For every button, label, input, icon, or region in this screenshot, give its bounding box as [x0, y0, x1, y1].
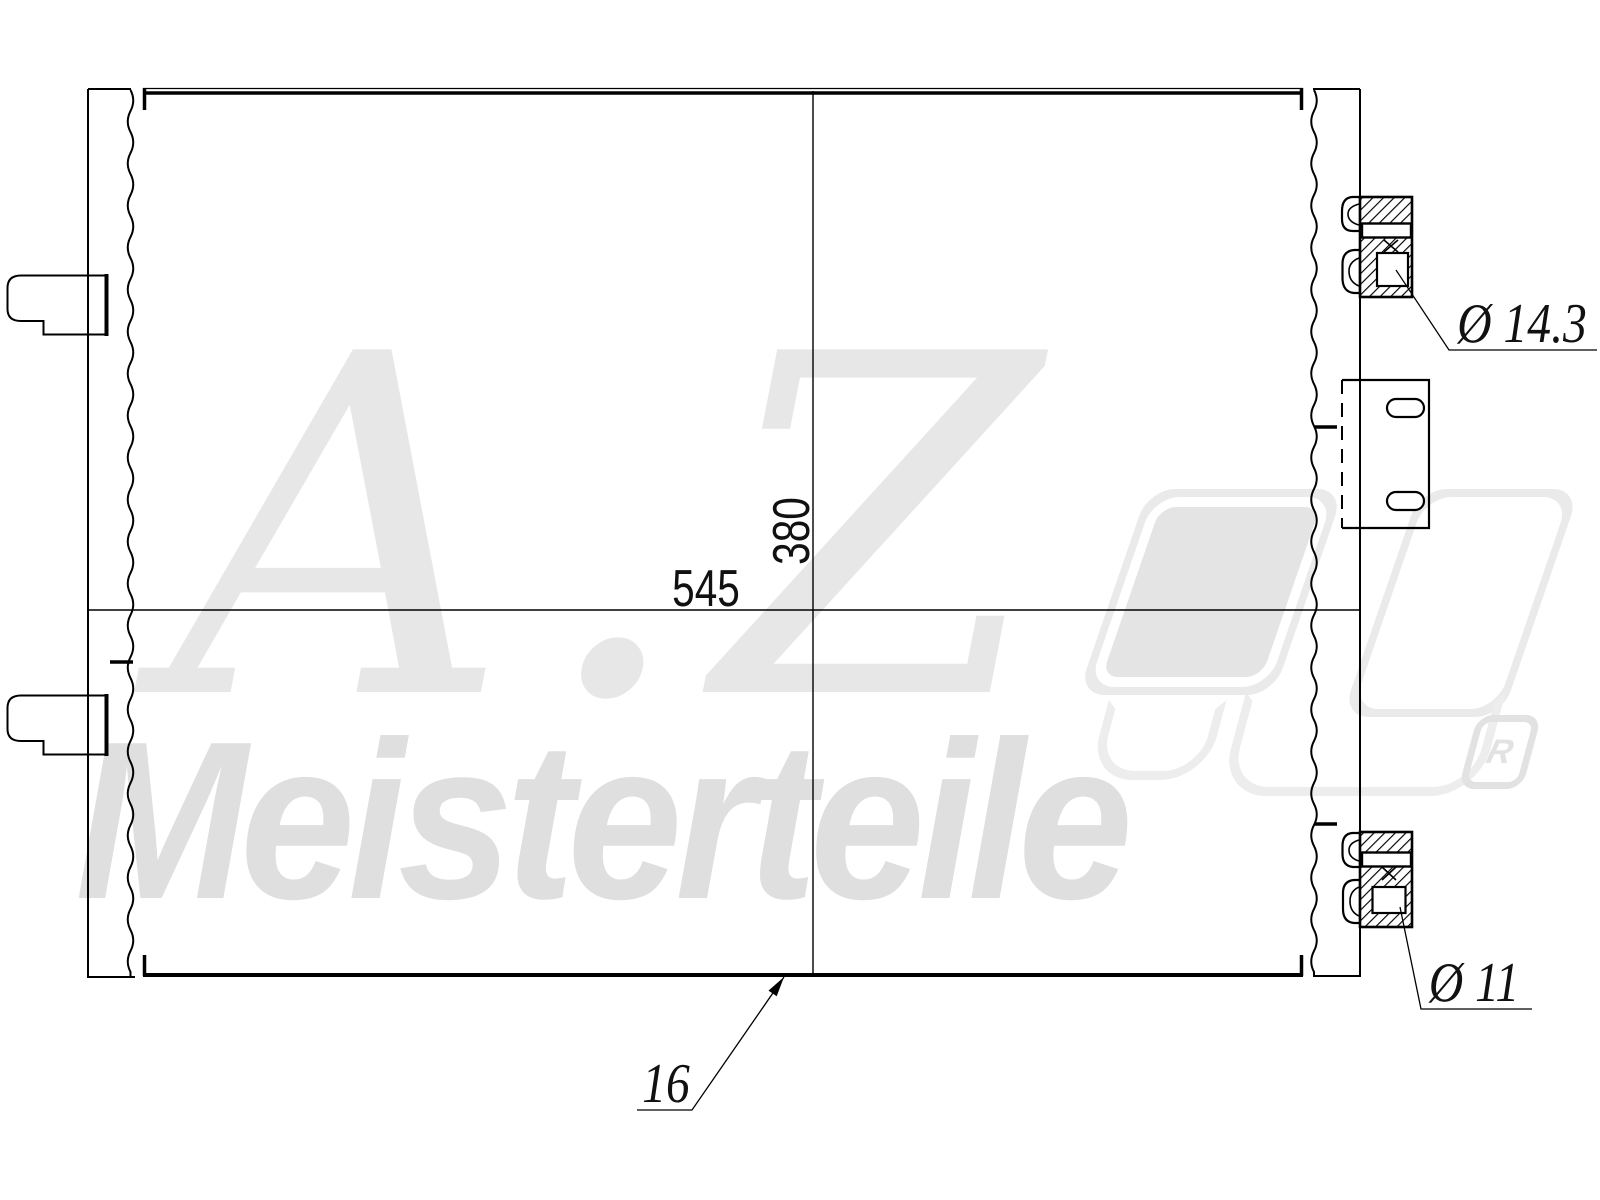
top-fitting: [1342, 197, 1412, 297]
right-mounting-bracket: [1342, 380, 1429, 528]
bottom-fitting-tab-lower: [1343, 880, 1360, 923]
dimension-depth: 16: [642, 1054, 690, 1115]
top-fitting-groove: [1362, 224, 1411, 238]
bottom-fitting-groove: [1362, 853, 1411, 867]
top-fitting-tab-upper: [1342, 197, 1360, 231]
left-bracket-lower-outline: [8, 696, 107, 755]
core: [143, 88, 1303, 976]
leader-arrowhead-icon: [769, 977, 785, 996]
right-fin-zigzag-edge: [1311, 90, 1317, 975]
bottom-fitting-tab-upper: [1343, 833, 1361, 867]
dimension-bottom-fitting-diameter: Ø 11: [1428, 953, 1519, 1014]
top-fitting-tab-lower: [1343, 250, 1361, 293]
centerlines: [88, 91, 1360, 975]
dimension-core-height: 380: [762, 497, 820, 565]
left-bracket-upper: [8, 274, 107, 336]
drawing-canvas: A.Z. Meisterteile R: [0, 0, 1600, 1200]
bracket-slot-lower: [1387, 492, 1424, 510]
left-bracket-lower: [8, 694, 107, 756]
left-bracket-upper-outline: [8, 276, 107, 335]
bracket-slot-upper: [1387, 399, 1424, 417]
left-tank: [88, 89, 135, 978]
condenser-technical-drawing: 545 380 Ø 14.3 Ø 11 16: [0, 0, 1600, 1200]
dimension-top-fitting-diameter: Ø 14.3: [1456, 294, 1586, 355]
left-fin-zigzag-edge: [128, 90, 134, 976]
dimension-core-width: 545: [672, 559, 740, 617]
